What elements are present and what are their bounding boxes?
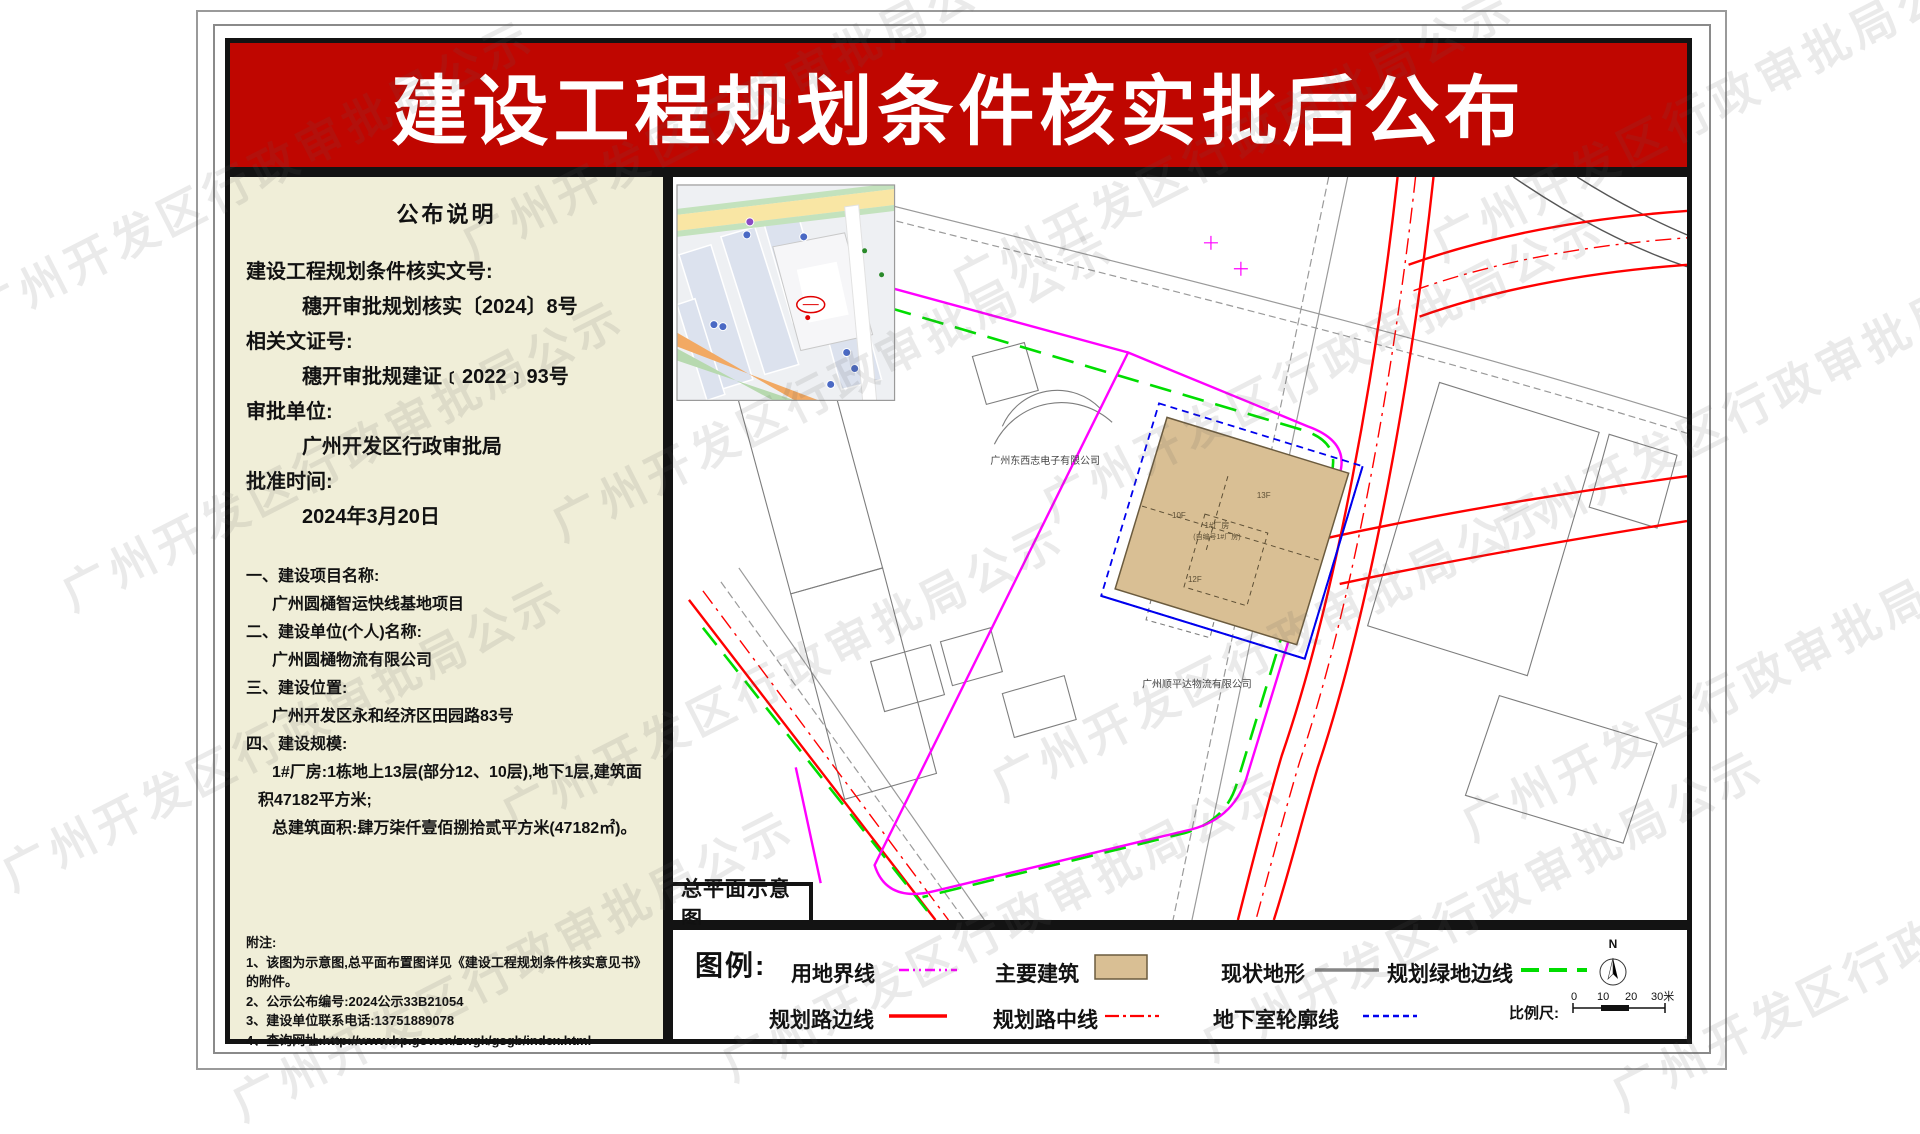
north-arrow: N [1593, 936, 1633, 992]
svg-text:10: 10 [1597, 991, 1609, 1003]
note-2: 2、公示公布编号:2024公示33B21054 [246, 992, 647, 1012]
legend-label-green-edge: 规划绿地边线 [1387, 958, 1513, 988]
item-owner-label: 二、建设单位(个人)名称: [246, 619, 647, 647]
notes-heading: 附注: [246, 933, 647, 953]
floor-label-top: 13F [1257, 491, 1271, 500]
north-label: N [1609, 937, 1618, 951]
company-label-1: 广州东西志电子有限公司 [990, 454, 1100, 467]
item-project-name-value: 广州圆樋智运快线基地项目 [246, 591, 647, 619]
item-owner-value: 广州圆樋物流有限公司 [246, 647, 647, 675]
building-note-label: (自编号1#厂房) [1193, 532, 1240, 541]
item-scale-value1: 1#厂房:1栋地上13层(部分12、10层),地下1层,建筑面积47182平方米… [246, 759, 647, 815]
plan-caption: 总平面示意图 [673, 882, 813, 920]
legend-label-building: 主要建筑 [995, 958, 1079, 988]
svg-text:0: 0 [1571, 991, 1577, 1003]
item-location-value: 广州开发区永和经济区田园路83号 [246, 703, 647, 731]
project-items: 一、建设项目名称: 广州圆樋智运快线基地项目 二、建设单位(个人)名称: 广州圆… [246, 563, 647, 843]
scale-bar: 0 10 20 30米 [1567, 988, 1679, 1022]
svg-text:30米: 30米 [1651, 990, 1674, 1003]
note-1: 1、该图为示意图,总平面布置图详见《建设工程规划条件核实意见书》的附件。 [246, 953, 647, 992]
scale-label: 比例尺: [1509, 1002, 1559, 1023]
item-project-name-label: 一、建设项目名称: [246, 563, 647, 591]
map-site-dot [805, 315, 810, 320]
title-banner: 建设工程规划条件核实批后公布 [225, 38, 1692, 172]
legend-sample-basement [1361, 1010, 1419, 1022]
building-number-label: 1#厂房 [1205, 520, 1230, 530]
field-approval-unit: 审批单位: 广州开发区行政审批局 [246, 395, 647, 465]
legend-label-terrain: 现状地形 [1221, 958, 1305, 988]
panel-heading: 公布说明 [246, 197, 647, 229]
notes-block: 附注: 1、该图为示意图,总平面布置图详见《建设工程规划条件核实意见书》的附件。… [246, 933, 647, 1050]
item-scale-value2: 总建筑面积:肆万柒仟壹佰捌拾贰平方米(47182㎡)。 [246, 815, 647, 843]
legend-heading: 图例: [695, 944, 766, 984]
company-label-2: 广州顺平达物流有限公司 [1142, 678, 1252, 691]
note-4: 4、查询网址:http://www.hp.gov.cn/zwgk/gsgb/in… [246, 1031, 647, 1051]
legend-sample-terrain [1313, 964, 1381, 976]
page-title: 建设工程规划条件核实批后公布 [392, 50, 1526, 160]
svg-text:20: 20 [1625, 991, 1637, 1003]
legend-sample-road-edge [887, 1010, 949, 1022]
legend-sample-boundary [897, 964, 959, 976]
legend-label-road-edge: 规划路边线 [769, 1004, 874, 1034]
legend-label-road-center: 规划路中线 [993, 1004, 1098, 1034]
floor-label-bottom: 12F [1188, 575, 1202, 584]
item-scale-label: 四、建设规模: [246, 731, 647, 759]
field-document-no: 建设工程规划条件核实文号: 穗开审批规划核实〔2024〕8号 [246, 255, 647, 325]
legend-label-boundary: 用地界线 [791, 958, 875, 988]
legend-sample-green-edge [1519, 964, 1589, 976]
field-related-cert: 相关文证号: 穗开审批规建证﹝2022﹞93号 [246, 325, 647, 395]
inset-location-map [677, 183, 895, 400]
note-3: 3、建设单位联系电话:13751889078 [246, 1011, 647, 1031]
legend-sample-road-center [1103, 1010, 1161, 1022]
item-location-label: 三、建设位置: [246, 675, 647, 703]
site-plan-box: 广州东西志电子有限公司 广州顺平达物流有限公司 13F 10F 12F 1#厂房… [668, 172, 1692, 925]
legend-sample-building [1093, 953, 1149, 981]
legend-label-basement: 地下室轮廓线 [1213, 1004, 1339, 1034]
site-plan-drawing: 广州东西志电子有限公司 广州顺平达物流有限公司 13F 10F 12F 1#厂房… [673, 177, 1687, 920]
field-approval-date: 批准时间: 2024年3月20日 [246, 465, 647, 535]
legend-box: 图例: 用地界线 主要建筑 现状地形 规划绿地边线 规划路边线 规划路中线 地下… [668, 925, 1692, 1044]
floor-label-mid: 10F [1172, 511, 1186, 520]
announcement-panel: 公布说明 建设工程规划条件核实文号: 穗开审批规划核实〔2024〕8号 相关文证… [225, 172, 668, 1044]
